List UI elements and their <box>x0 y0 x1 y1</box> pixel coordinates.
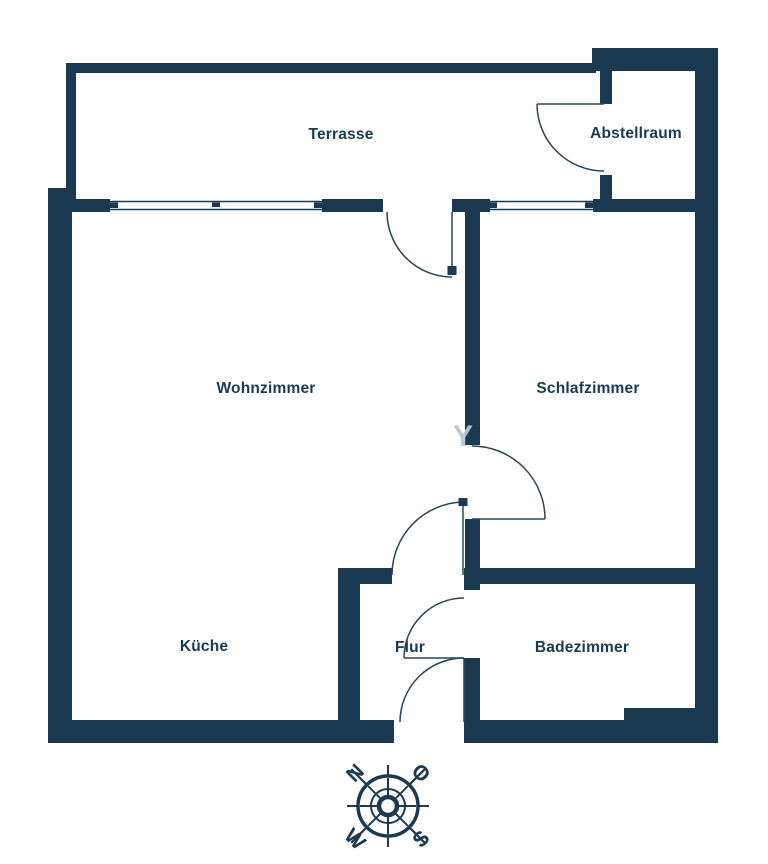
window-living-room-frame-ticks <box>108 203 324 209</box>
room-label-flur: Flur <box>395 639 425 657</box>
room-label-schlafzimmer: Schlafzimmer <box>536 380 639 398</box>
room-label-terrasse: Terrasse <box>308 126 373 144</box>
room-label-kueche: Küche <box>180 638 228 656</box>
wall-terrace-top <box>66 63 596 73</box>
compass-spokes <box>360 778 416 834</box>
wall-top-c <box>452 199 490 212</box>
wall-mid-right <box>464 568 695 584</box>
room-label-abstellraum: Abstellraum <box>590 125 682 143</box>
wall-divider-hall-bath-lower <box>464 658 480 720</box>
room-label-badezimmer: Badezimmer <box>535 639 629 657</box>
wall-storage-left-upper <box>600 71 612 104</box>
room-label-wohnzimmer: Wohnzimmer <box>216 380 315 398</box>
door-terrace <box>387 212 457 277</box>
floorplan-canvas: N O W S Terrasse Abstellraum Wohnzimmer … <box>0 0 768 864</box>
window-bedroom <box>490 202 593 210</box>
wall-divider-kitchen-hall <box>338 568 360 720</box>
door-bedroom <box>472 446 545 519</box>
wall-bottom-left <box>48 720 394 743</box>
door-entrance <box>400 658 464 722</box>
wall-top-b <box>322 199 383 212</box>
watermark-letter: Y <box>453 420 473 454</box>
wall-divider-living-bedroom-upper <box>465 212 480 445</box>
wall-divider-hall-bath-upper <box>464 584 480 590</box>
compass-rose-icon: N O W S <box>340 759 435 854</box>
wall-right-upper <box>695 48 718 212</box>
wall-top-a <box>72 199 110 212</box>
wall-top-d <box>593 199 695 212</box>
wall-divider-living-bedroom-lower <box>465 519 480 568</box>
wall-right <box>695 212 718 743</box>
door-hall <box>392 498 468 575</box>
doors <box>387 104 604 722</box>
wall-bath-step <box>624 708 695 720</box>
wall-left <box>48 188 72 743</box>
wall-terrace-left <box>66 63 76 200</box>
window-bedroom-frame-ticks <box>487 203 595 209</box>
wall-bottom-right <box>464 720 718 743</box>
